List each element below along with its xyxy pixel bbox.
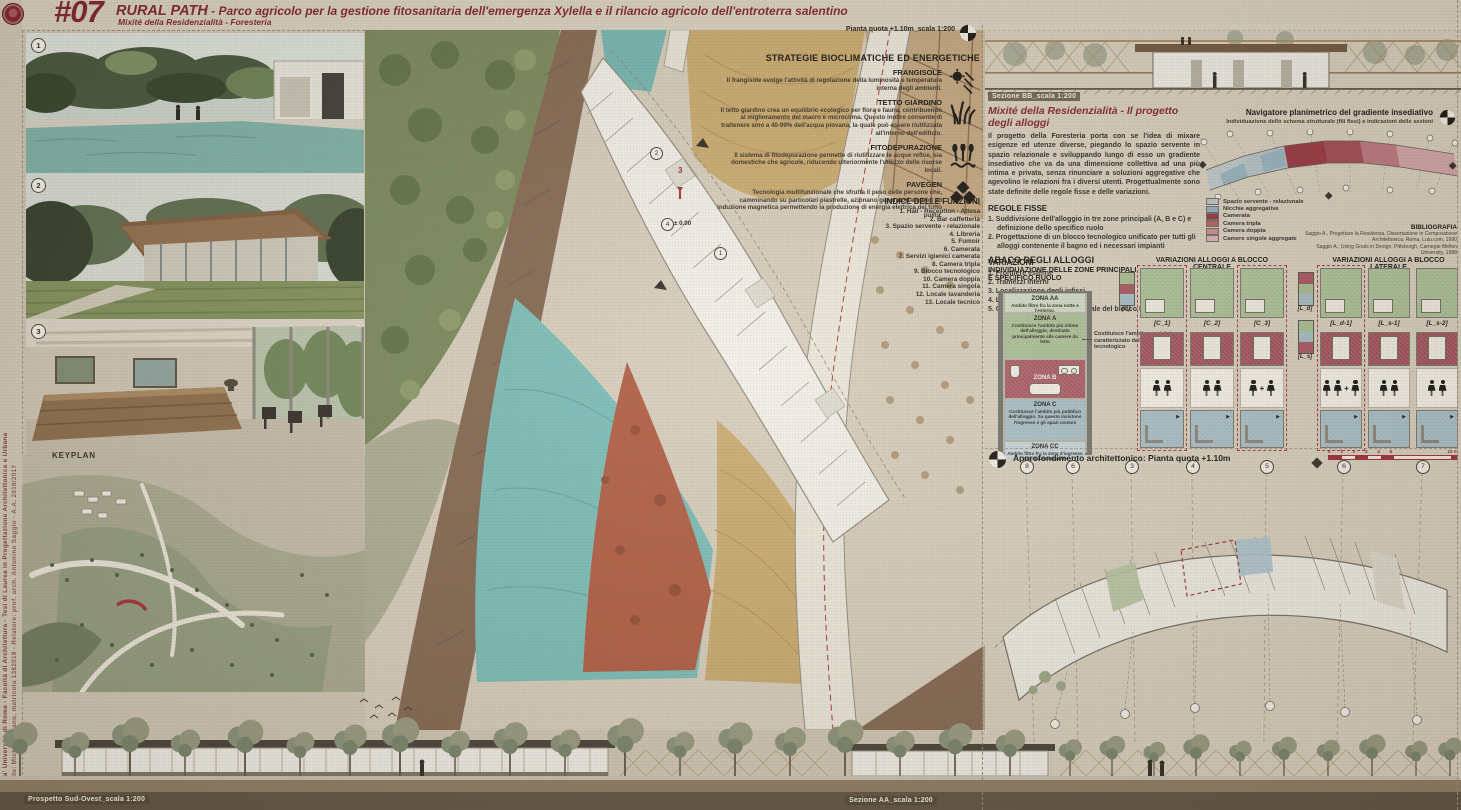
- legend-swatch: [1206, 206, 1219, 213]
- zona-b-room: [1368, 332, 1410, 366]
- alloggio-variant-c2: [C_2]: [1190, 268, 1234, 448]
- section-number: 3: [678, 166, 682, 175]
- bottom-elevation-band: [0, 692, 1461, 810]
- legend-row: Camera tripla: [1206, 220, 1304, 227]
- title-tagline: Mixité della Residenzialità - Foresteria: [118, 17, 272, 27]
- function-item: 10. Camera doppia: [778, 276, 980, 284]
- legend-swatch: [1206, 220, 1219, 227]
- presentation-board: 'Sapienza' Università di Roma - Facoltà …: [0, 0, 1461, 810]
- variant-label: [L_d-1]: [1320, 318, 1362, 330]
- section-cut-marker: 3: [678, 166, 682, 199]
- strategy-name: TETTO GIARDINO: [716, 98, 942, 107]
- function-item: 8. Camera tripla: [778, 261, 980, 269]
- grid-marker: 6: [1337, 460, 1351, 474]
- strategy-frangisole: FRANGISOLE Il frangisole svolge l'attivi…: [716, 68, 980, 93]
- blocco-laterale-sx-icon: [1298, 320, 1314, 354]
- blocco-laterale-sx-label: [L_s]: [1294, 354, 1316, 360]
- navigator-subtitle: Individuazione dello schema strutturale …: [1200, 119, 1433, 125]
- regole-fisse-title: REGOLE FISSE: [988, 204, 1200, 213]
- regola-item: 2. Progettazione di un blocco tecnologic…: [988, 233, 1200, 251]
- abaco-subtitle: INDIVIDUAZIONE DELLE ZONE PRINCIPALI E S…: [988, 266, 1138, 283]
- section-aa-label: Sezione AA_scala 1:200: [845, 796, 937, 805]
- tub-fixture: [1029, 383, 1061, 395]
- navigator-title: Navigatore planimetrico del gradiente in…: [1203, 109, 1433, 118]
- grid-marker: 4: [1186, 460, 1200, 474]
- interior-reception-render: [26, 319, 364, 455]
- legend-label: Spazio servente - relazionale: [1223, 199, 1304, 205]
- function-item: 11. Camera singola: [778, 283, 980, 291]
- title-subtitle: - Parco agricolo per la gestione fitosan…: [208, 4, 848, 18]
- navigator-legend: Spazio servente - relazionale Nicchie ag…: [1206, 198, 1304, 242]
- blocco-laterale-dx-icon: [1298, 272, 1314, 306]
- sun-louvers-icon: [950, 69, 976, 95]
- occupants: [1368, 368, 1410, 408]
- legend-label: Nicchie aggregative: [1223, 206, 1279, 212]
- grass-icon: [950, 99, 976, 125]
- zona-a-room: [1416, 268, 1458, 318]
- mixite-body: Il progetto della Foresteria porta con s…: [988, 132, 1200, 197]
- strategy-fitodepurazione: FITODEPURAZIONE Il sistema di fitodepura…: [716, 143, 980, 175]
- legend-label: Camere singole aggregate: [1223, 236, 1297, 242]
- legend-swatch: [1206, 235, 1219, 242]
- legend-swatch: [1206, 198, 1219, 205]
- section-bb-drawing: [985, 28, 1461, 94]
- blocco-centrale-icon: [1119, 272, 1135, 306]
- occupants: [1416, 368, 1458, 408]
- reeds-water-icon: [950, 144, 976, 170]
- function-item: 9. Blocco tecnologico: [778, 268, 980, 276]
- pool-landscape-render: [26, 33, 364, 173]
- keyplan-label: KEYPLAN: [52, 451, 96, 460]
- function-item: 12. Locale lavanderia: [778, 291, 980, 299]
- bibliography-entry: Saggio A., Using Goals in Design, Pittsb…: [1299, 244, 1457, 257]
- edge-caption-strip: 'Sapienza' Università di Roma - Facoltà …: [0, 0, 23, 810]
- zona-a-room: [1320, 268, 1362, 318]
- function-item: 1. Hall - Reception - Attesa: [778, 208, 980, 216]
- gradient-navigator-diagram: [1200, 130, 1459, 202]
- north-arrow-icon: [959, 24, 977, 42]
- legend-swatch: [1206, 213, 1219, 220]
- zone-stack-diagram: ZONA AAAmbito filtro fra la zona notte e…: [998, 291, 1092, 455]
- variant-label: [L_s-2]: [1416, 318, 1458, 330]
- sapienza-logo: [2, 3, 24, 25]
- bibliography-entry: Saggio A., Progettare la Residenza, Diss…: [1299, 231, 1457, 244]
- photo-badge: 2: [31, 178, 46, 193]
- function-item: 4. Libreria: [778, 231, 980, 239]
- grid-marker: 6: [1066, 460, 1080, 474]
- strategy-tetto-giardino: TETTO GIARDINO Il tetto giardino crea un…: [716, 98, 980, 138]
- zona-aa: ZONA AAAmbito filtro fra la zona notte e…: [1005, 294, 1085, 312]
- alloggio-variant-ls2: [L_s-2]: [1416, 268, 1458, 448]
- strategies-title: STRATEGIE BIOCLIMATICHE ED ENERGETICHE: [716, 53, 980, 63]
- board-edge-line: [1457, 0, 1458, 810]
- render-photo-landscape: 1: [26, 33, 364, 173]
- legend-row: Camera doppia: [1206, 228, 1304, 235]
- occupants: [1140, 368, 1184, 408]
- plan-navigator: Navigatore planimetrico del gradiente in…: [1200, 106, 1459, 256]
- function-item: 13. Locale tecnico: [778, 299, 980, 307]
- legend-label: Camera tripla: [1223, 221, 1261, 227]
- photo-badge: 3: [31, 324, 46, 339]
- occupants: [1190, 368, 1234, 408]
- zona-c-room: [1140, 410, 1184, 448]
- section-arrow-icon: [679, 187, 681, 199]
- north-arrow-icon: [1439, 109, 1456, 126]
- blocco-centrale-icon-label: [C]: [1115, 306, 1137, 312]
- render-photo-building: 2: [26, 173, 364, 319]
- zona-c-room: [1416, 410, 1458, 448]
- strategy-text: Il frangisole svolge l'attività di regol…: [716, 77, 942, 93]
- alloggio-variant-ls1: [L_s-1]: [1368, 268, 1410, 448]
- zona-c-room: [1320, 410, 1362, 448]
- scale-bar-graphic: [1328, 455, 1458, 460]
- grid-marker: 3: [1125, 460, 1139, 474]
- grid-marker: 7: [1416, 460, 1430, 474]
- level-marker: ± 0.00: [674, 220, 691, 227]
- zona-b-room: [1240, 332, 1284, 366]
- bioclimatic-strategies: STRATEGIE BIOCLIMATICHE ED ENERGETICHE F…: [716, 53, 980, 220]
- zona-c: ZONA CCostituisce l'ambito più pubblico …: [1005, 400, 1085, 440]
- function-item: 6. Camerata: [778, 246, 980, 254]
- prospetto-label: Prospetto Sud-Ovest_scala 1:200: [24, 795, 149, 804]
- photo-badge: 1: [31, 38, 46, 53]
- legend-row: Camerata: [1206, 213, 1304, 220]
- north-arrow-icon: [988, 450, 1007, 469]
- blocco-laterale-dx-label: [L_d]: [1294, 306, 1316, 312]
- function-index-title: INDICE DELLE FUNZIONI: [778, 197, 980, 206]
- scale-bar: 0 1 2 3 4 5 10 m: [1328, 449, 1458, 460]
- zona-b-room: [1320, 332, 1362, 366]
- board-number: #07: [54, 0, 103, 30]
- variant-label: [C_1]: [1140, 318, 1184, 330]
- function-item: 2. Bar caffetteria: [778, 216, 980, 224]
- function-index: INDICE DELLE FUNZIONI 1. Hall - Receptio…: [778, 197, 980, 306]
- function-item: 5. Fumoir: [778, 238, 980, 246]
- zona-b-room: [1190, 332, 1234, 366]
- zone-name: ZONA C: [1005, 400, 1085, 408]
- zona-b: ZONA B: [1005, 360, 1085, 398]
- grid-marker: 5: [1260, 460, 1274, 474]
- university-caption: 'Sapienza' Università di Roma - Facoltà …: [2, 34, 9, 804]
- plan-function-marker: 1: [714, 247, 727, 260]
- zona-c-room: [1190, 410, 1234, 448]
- zona-a-room: [1368, 268, 1410, 318]
- zona-a: ZONA ACostituisce l'ambito più intimo de…: [1005, 314, 1085, 358]
- variant-label: [C_3]: [1240, 318, 1284, 330]
- panel-separator: [982, 25, 983, 810]
- legend-row: Camere singole aggregate: [1206, 235, 1304, 242]
- render-photo-interior: 3: [26, 319, 364, 455]
- abaco-title: ABACO DEGLI ALLOGGI: [988, 255, 1094, 265]
- mixite-title: Mixité della Residenzialità - Il progett…: [988, 106, 1200, 129]
- variant-label: [C_2]: [1190, 318, 1234, 330]
- zone-b-leader-line: [1082, 339, 1092, 340]
- legend-row: Nicchie aggregative: [1206, 205, 1304, 212]
- zone-name: ZONA AA: [1005, 294, 1085, 302]
- zona-c-room: [1240, 410, 1284, 448]
- zone-text: Costituisce l'ambito più pubblico dell'a…: [1005, 408, 1085, 426]
- legend-swatch: [1206, 228, 1219, 235]
- zona-b-room: [1416, 332, 1458, 366]
- author-caption: Laureando: Michele Spano, matricola 1382…: [11, 34, 18, 804]
- legend-label: Camera doppia: [1223, 228, 1266, 234]
- occupants: +: [1240, 368, 1284, 408]
- regola-item: 1. Suddivisione dell'alloggio in tre zon…: [988, 215, 1200, 233]
- zone-name: ZONA B: [1005, 373, 1085, 381]
- keyplan-map: [22, 455, 365, 692]
- zona-a-room: [1190, 268, 1234, 318]
- bibliography-title: BIBLIOGRAFIA: [1299, 224, 1457, 231]
- alloggio-variant-c3: [C_3] +: [1240, 268, 1284, 448]
- zona-a-room: [1240, 268, 1284, 318]
- zone-text: Ambito filtro fra la zona notte e l'este…: [1005, 302, 1085, 312]
- function-item: 3. Spazio servente - relazionale: [778, 223, 980, 231]
- grid-marker: 8: [1020, 460, 1034, 474]
- variant-label: [L_s-1]: [1368, 318, 1410, 330]
- legend-row: Spazio servente - relazionale: [1206, 198, 1304, 205]
- zona-a-room: [1140, 268, 1184, 318]
- strategy-name: PAVEGEN: [716, 180, 942, 189]
- building-exterior-render: [26, 173, 364, 319]
- function-item: 7. Servizi igienici camerata: [778, 253, 980, 261]
- bibliography: BIBLIOGRAFIA Saggio A., Progettare la Re…: [1299, 224, 1457, 256]
- occupants: +: [1320, 368, 1362, 408]
- strategy-name: FITODEPURAZIONE: [716, 143, 942, 152]
- strategy-text: Il sistema di fitodepurazione permette d…: [716, 152, 942, 175]
- plan-function-marker: 2: [650, 147, 663, 160]
- section-bb-label: Sezione BB_scala 1:200: [988, 92, 1080, 101]
- zona-b-room: [1140, 332, 1184, 366]
- alloggio-variant-c1: [C_1]: [1140, 268, 1184, 448]
- strategy-text: Il tetto giardino crea un equilibrio eco…: [716, 107, 942, 138]
- strategy-name: FRANGISOLE: [716, 68, 942, 77]
- legend-label: Camerata: [1223, 213, 1250, 219]
- zone-text: Costituisce l'ambito più intimo dell'all…: [1005, 322, 1085, 346]
- plan-function-marker: 4: [661, 218, 674, 231]
- zone-name: ZONA A: [1005, 314, 1085, 322]
- alloggio-variant-ld1: [L_d-1] +: [1320, 268, 1362, 448]
- scale-numbers: 0 1 2 3 4 5: [1328, 449, 1458, 454]
- plan-scale-label: Pianta quota +1.10m_scala 1:200: [795, 26, 955, 33]
- zona-c-room: [1368, 410, 1410, 448]
